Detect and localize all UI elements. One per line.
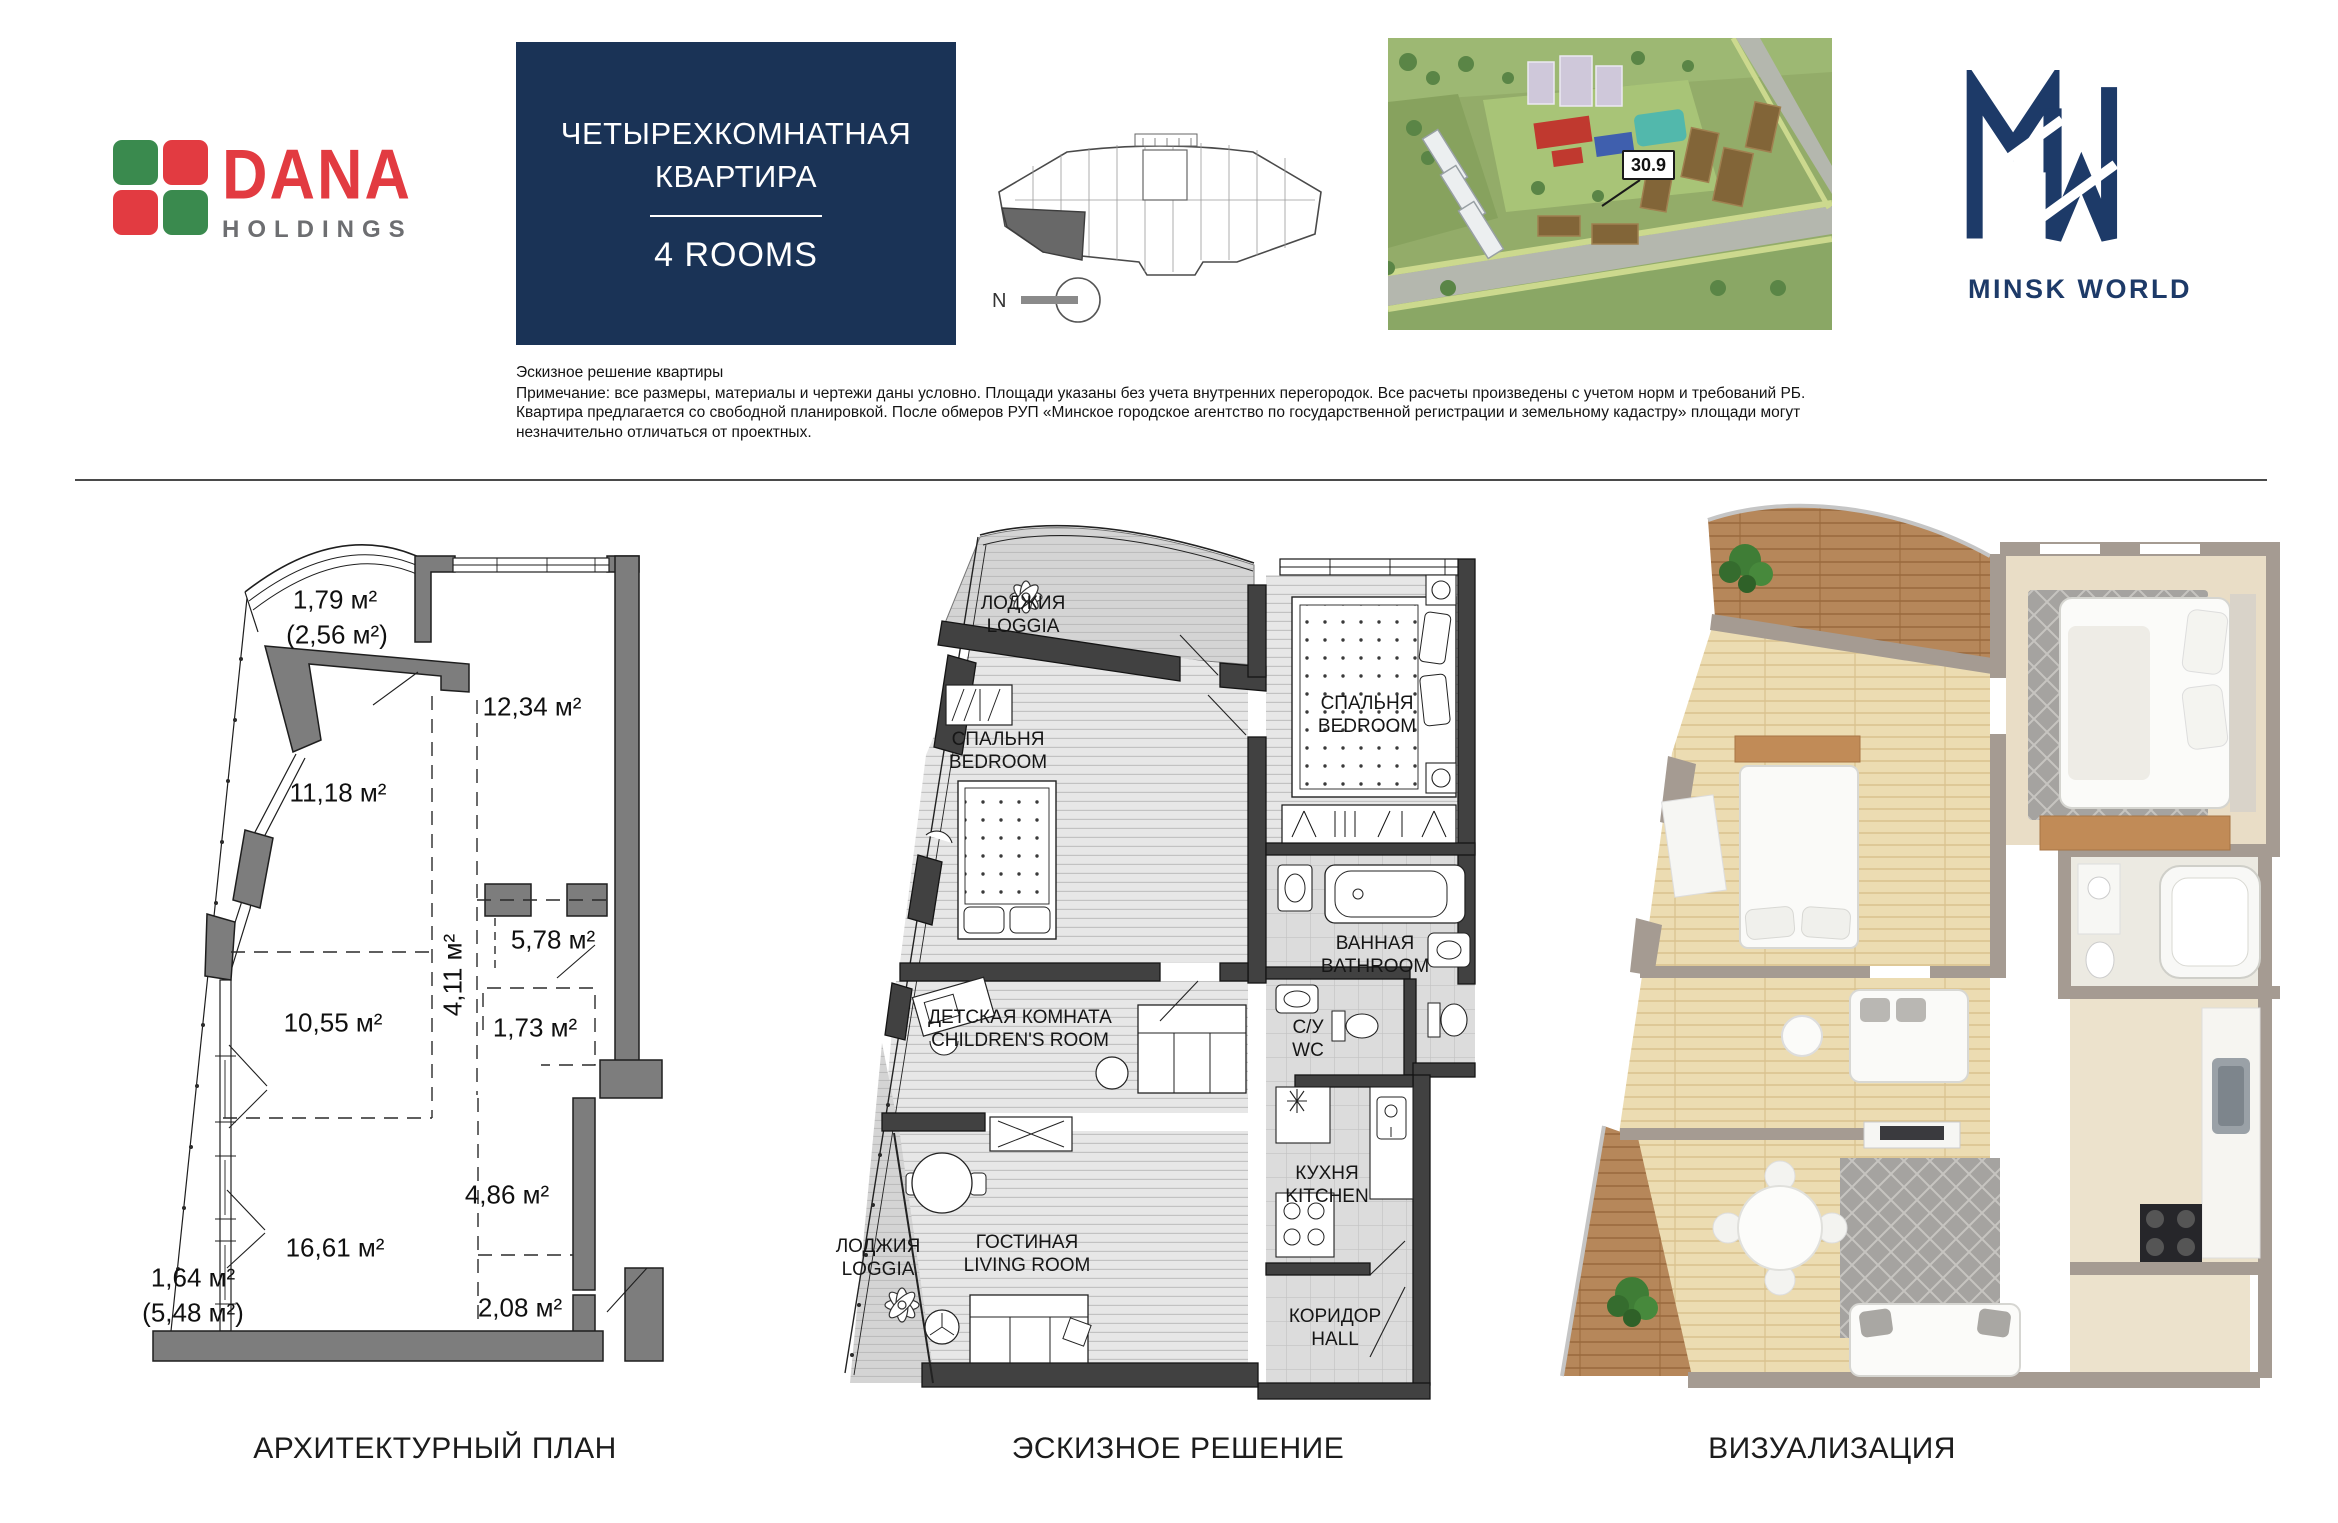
disclaimer-title: Эскизное решение квартиры xyxy=(516,363,1856,383)
building-footprint-drawing xyxy=(985,92,1345,342)
title-divider xyxy=(650,215,822,217)
sofa xyxy=(1138,1005,1246,1093)
toilet xyxy=(1332,1011,1378,1041)
caption-visualization: ВИЗУАЛИЗАЦИЯ xyxy=(1708,1432,1956,1466)
ball xyxy=(1096,1057,1128,1089)
room-label-loggia-top: ЛОДЖИЯLOGGIA xyxy=(981,592,1066,638)
site-map-render xyxy=(1388,38,1832,330)
building-number-tag: 30.9 xyxy=(1622,150,1675,180)
area-label: 10,55 м² xyxy=(284,1008,383,1039)
dana-wordmark: DANA xyxy=(222,138,413,212)
sofa xyxy=(1850,1304,2020,1376)
room-label-hall: КОРИДОРHALL xyxy=(1289,1305,1381,1351)
floor-key-plan: N xyxy=(985,92,1345,342)
room-label-living-room: ГОСТИНАЯLIVING ROOM xyxy=(964,1231,1091,1277)
area-label: (5,48 м²) xyxy=(142,1298,244,1329)
area-label: 1,73 м² xyxy=(493,1013,577,1044)
tv xyxy=(1880,1126,1944,1140)
area-label: 1,64 м² xyxy=(151,1263,235,1294)
apartment-plan-sheet: DANA HOLDINGS ЧЕТЫРЕХКОМНАТНАЯ КВАРТИРА … xyxy=(0,0,2338,1523)
architectural-plan-panel: 1,79 м² (2,56 м²) 12,34 м² 11,18 м² 5,78… xyxy=(95,500,775,1400)
wardrobe xyxy=(946,685,1012,725)
area-label: 5,78 м² xyxy=(511,925,595,956)
north-arrow-icon xyxy=(1021,278,1100,322)
apartment-title-block: ЧЕТЫРЕХКОМНАТНАЯ КВАРТИРА 4 ROOMS xyxy=(516,42,956,345)
minsk-world-wordmark: MINSK WORLD xyxy=(1935,274,2225,305)
area-label: 12,34 м² xyxy=(483,692,582,723)
area-label: 11,18 м² xyxy=(290,778,387,809)
toilet xyxy=(1428,1003,1467,1037)
room-label-loggia-bottom: ЛОДЖИЯLOGGIA xyxy=(836,1235,921,1281)
visualization-panel xyxy=(1540,498,2280,1402)
bench xyxy=(2040,816,2230,850)
area-label: 16,61 м² xyxy=(286,1233,385,1264)
area-label: (2,56 м²) xyxy=(286,620,388,651)
caption-architectural-plan: АРХИТЕКТУРНЫЙ ПЛАН xyxy=(253,1432,617,1466)
dana-squares-icon xyxy=(112,138,210,238)
title-line-2: КВАРТИРА xyxy=(655,155,817,198)
highlighted-apartment-unit xyxy=(1002,208,1085,260)
title-line-1: ЧЕТЫРЕХКОМНАТНАЯ xyxy=(561,112,911,155)
wardrobe xyxy=(1282,805,1456,843)
site-map: 30.9 xyxy=(1388,38,1832,330)
dana-holdings-logo: DANA HOLDINGS xyxy=(112,138,413,244)
area-label: 2,08 м² xyxy=(478,1293,562,1324)
mw-monogram-icon xyxy=(1964,70,2124,262)
sketch-plan-panel: ЛОДЖИЯLOGGIA СПАЛЬНЯBEDROOM СПАЛЬНЯBEDRO… xyxy=(830,505,1480,1400)
north-label: N xyxy=(992,290,1006,313)
visualization-render xyxy=(1540,498,2280,1402)
fan-icon xyxy=(925,1310,959,1344)
room-label-bedroom-left: СПАЛЬНЯBEDROOM xyxy=(949,728,1047,774)
disclaimer: Эскизное решение квартиры Примечание: вс… xyxy=(516,363,1856,442)
side-table xyxy=(1782,1016,1822,1056)
room-label-bedroom-right: СПАЛЬНЯBEDROOM xyxy=(1318,692,1416,738)
disclaimer-note: Примечание: все размеры, материалы и чер… xyxy=(516,384,1856,443)
room-label-children-room: ДЕТСКАЯ КОМНАТАCHILDREN'S ROOM xyxy=(928,1006,1112,1052)
room-label-kitchen: КУХНЯKITCHEN xyxy=(1285,1162,1368,1208)
area-label: 1,79 м² xyxy=(293,585,377,616)
room-label-wc: С/УWC xyxy=(1292,1016,1324,1062)
toilet xyxy=(2086,942,2114,978)
header-divider-line xyxy=(75,479,2267,481)
caption-sketch-plan: ЭСКИЗНОЕ РЕШЕНИЕ xyxy=(1012,1432,1345,1466)
dana-holdings-label: HOLDINGS xyxy=(222,216,413,244)
area-label: 4,86 м² xyxy=(465,1180,549,1211)
room-label-bathroom: ВАННАЯBATHROOM xyxy=(1321,932,1429,978)
rooms-count-label: 4 ROOMS xyxy=(654,236,818,275)
area-label: 4,11 м² xyxy=(438,934,469,1016)
sofa xyxy=(970,1295,1091,1363)
